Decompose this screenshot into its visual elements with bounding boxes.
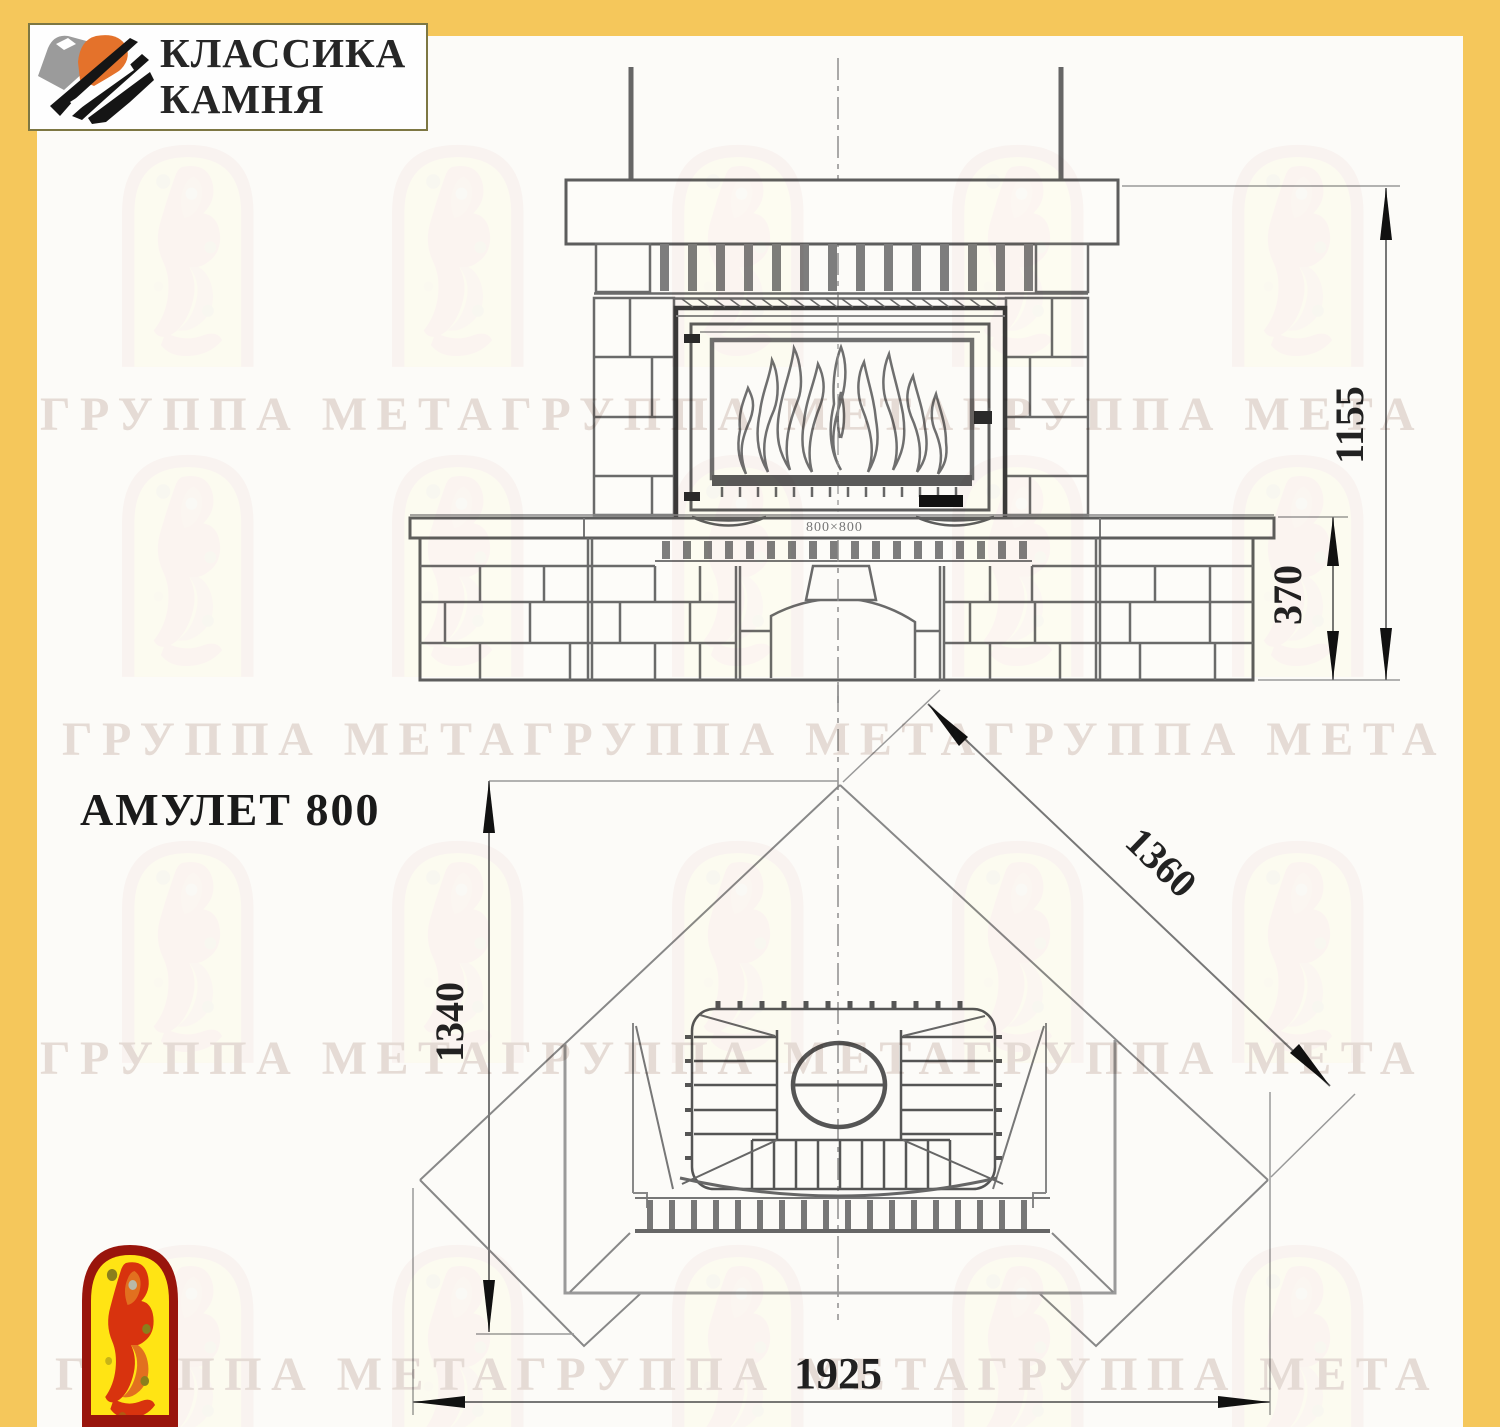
svg-text:ГРУППА МЕТАГРУППА МЕТАГРУППА М: ГРУППА МЕТАГРУППА МЕТАГРУППА МЕТА <box>40 388 1424 441</box>
svg-text:ГРУППА МЕТАГРУППА МЕТАГРУППА М: ГРУППА МЕТАГРУППА МЕТАГРУППА МЕТА <box>55 1348 1439 1401</box>
svg-text:ГРУППА МЕТАГРУППА МЕТАГРУППА М: ГРУППА МЕТАГРУППА МЕТАГРУППА МЕТА <box>62 713 1446 766</box>
svg-text:ГРУППА МЕТАГРУППА МЕТАГРУППА М: ГРУППА МЕТАГРУППА МЕТАГРУППА МЕТА <box>40 1032 1424 1085</box>
